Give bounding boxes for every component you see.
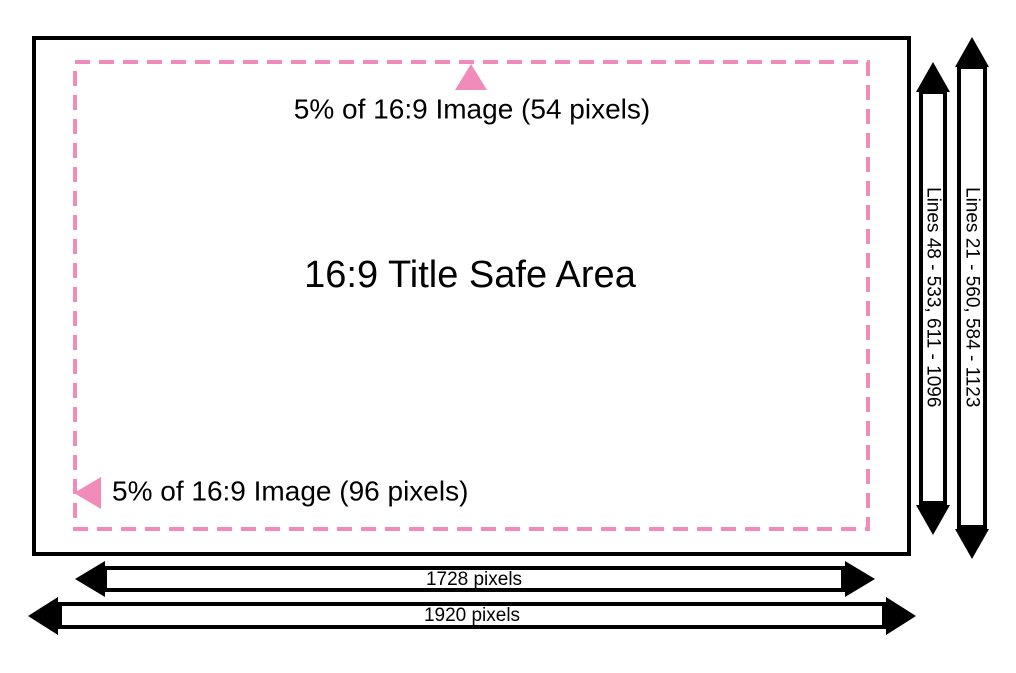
arrowhead-down-icon	[955, 529, 989, 559]
arrowhead-up-icon	[916, 62, 950, 92]
arrowhead-right-icon	[886, 597, 916, 635]
safe-width-measure-bar: 1728 pixels	[103, 566, 845, 592]
arrowhead-right-icon	[845, 561, 875, 597]
arrowhead-left-icon	[75, 561, 105, 597]
arrowhead-up-icon	[955, 37, 989, 67]
diagram-canvas: 5% of 16:9 Image (54 pixels) 16:9 Title …	[0, 0, 1016, 673]
full-width-measure-label: 1920 pixels	[424, 606, 520, 625]
full-width-measure-bar: 1920 pixels	[58, 602, 886, 629]
arrowhead-down-icon	[916, 505, 950, 535]
safe-lines-measure-bar: Lines 48 - 533, 611 - 1096	[919, 90, 947, 505]
safe-width-measure-label: 1728 pixels	[426, 570, 522, 589]
full-lines-measure-bar: Lines 21 - 560, 584 - 1123	[957, 65, 987, 529]
top-margin-label: 5% of 16:9 Image (54 pixels)	[294, 95, 650, 126]
full-lines-measure-label: Lines 21 - 560, 584 - 1123	[963, 187, 982, 407]
left-margin-arrow-icon	[74, 477, 101, 509]
top-margin-arrow-icon	[455, 64, 487, 90]
safe-lines-measure-label: Lines 48 - 533, 611 - 1096	[924, 187, 943, 407]
safe-area-title: 16:9 Title Safe Area	[304, 255, 636, 297]
arrowhead-left-icon	[28, 597, 58, 635]
left-margin-label: 5% of 16:9 Image (96 pixels)	[112, 477, 468, 508]
